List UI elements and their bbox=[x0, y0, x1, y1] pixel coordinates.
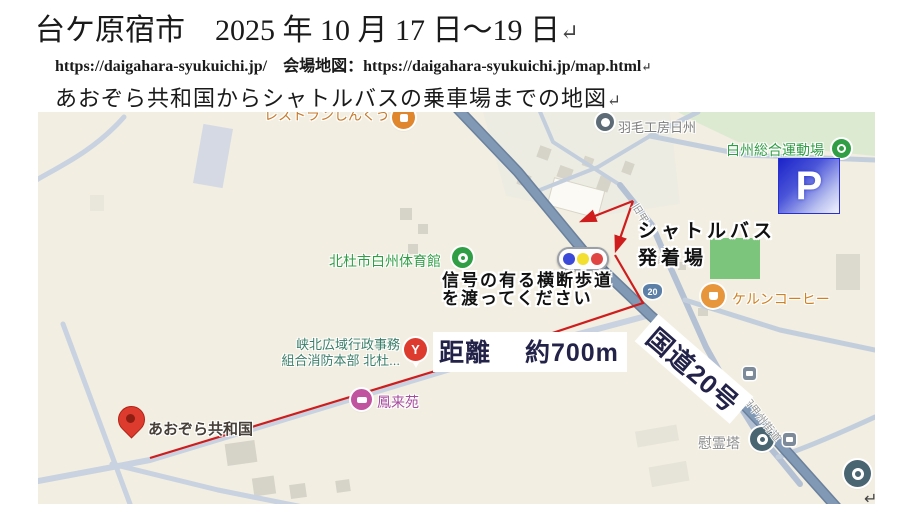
poi-label-memorial: 慰霊塔 bbox=[698, 433, 740, 453]
sports-ground-park-icon bbox=[832, 139, 851, 158]
aozora-map-pin-icon bbox=[118, 406, 144, 448]
poi-label-lodging: 鳳来苑 bbox=[377, 392, 419, 412]
crosswalk-line2: を渡ってください bbox=[442, 289, 593, 308]
fire-dept-line2: 組合消防本部 北杜... bbox=[282, 353, 400, 368]
feather-workshop-icon bbox=[596, 113, 614, 131]
coffee-icon bbox=[701, 284, 725, 308]
return-mark: ↵ bbox=[560, 20, 579, 45]
page-title-text: 台ケ原宿市 2025 年 10 月 17 日～19 日 bbox=[35, 14, 560, 47]
return-mark: ↵ bbox=[864, 489, 877, 509]
poi-label-gymnasium: 北杜市白州体育館 bbox=[329, 251, 441, 271]
traffic-light-icon bbox=[557, 247, 609, 271]
signal-red-lamp bbox=[591, 253, 603, 265]
local-road-northwest bbox=[38, 117, 124, 182]
map-subtitle: あおぞら共和国からシャトルバスの乗車場までの地図↵ bbox=[55, 81, 622, 113]
return-mark: ↵ bbox=[607, 91, 622, 110]
map-subtitle-text: あおぞら共和国からシャトルバスの乗車場までの地図 bbox=[55, 86, 607, 111]
annotation-distance: 距離 約700m bbox=[433, 332, 627, 372]
parking-letter: P bbox=[796, 166, 823, 206]
parking-icon: P bbox=[778, 158, 840, 214]
annotation-shuttle-stop: シャトルバス 発着場 bbox=[638, 216, 776, 270]
bus-stop-icon bbox=[743, 367, 756, 380]
fire-station-pin-icon: Y bbox=[404, 338, 427, 361]
lodging-icon bbox=[351, 389, 372, 410]
poi-label-coffee: ケルンコーヒー bbox=[732, 289, 830, 309]
shuttle-stop-line2: 発着場 bbox=[638, 248, 707, 269]
poi-label-sports-ground: 白州総合運動場 bbox=[726, 140, 824, 160]
poi-label-restaurant: レストランしんくう bbox=[264, 112, 390, 125]
links-line: https://daigahara-syukuichi.jp/ 会場地図：htt… bbox=[55, 52, 651, 76]
route-20-shield: 20 bbox=[643, 284, 662, 299]
fire-dept-line1: 峡北広域行政事務 bbox=[296, 337, 400, 352]
document-page: { "page": { "return_mark": "↵" }, "heade… bbox=[0, 0, 900, 517]
poi-icon bbox=[844, 460, 871, 487]
page-title: 台ケ原宿市 2025 年 10 月 17 日～19 日↵ bbox=[35, 5, 579, 49]
venue-map-label: 会場地図： bbox=[267, 58, 363, 75]
signal-yellow-lamp bbox=[577, 253, 589, 265]
poi-label-fire-dept: 峡北広域行政事務 組合消防本部 北杜... bbox=[238, 337, 400, 369]
signal-blue-lamp bbox=[563, 253, 575, 265]
venue-map-url-link[interactable]: https://daigahara-syukuichi.jp/map.html bbox=[363, 58, 641, 75]
gymnasium-park-icon bbox=[452, 247, 473, 268]
poi-label-aozora: あおぞら共和国 bbox=[148, 418, 253, 439]
crosswalk-line1: 信号の有る横断歩道 bbox=[442, 271, 613, 290]
poi-label-feather-workshop: 羽毛工房日州 bbox=[618, 117, 696, 136]
return-mark: ↵ bbox=[641, 60, 651, 74]
site-url-link[interactable]: https://daigahara-syukuichi.jp/ bbox=[55, 58, 267, 75]
route-map-image: Y レストランしんくう 羽毛工房日州 白州総合運動場 北杜市白州体育館 ケルンコ… bbox=[38, 112, 875, 504]
annotation-crosswalk: 信号の有る横断歩道 を渡ってください bbox=[442, 272, 613, 308]
shuttle-stop-line1: シャトルバス bbox=[638, 221, 776, 242]
